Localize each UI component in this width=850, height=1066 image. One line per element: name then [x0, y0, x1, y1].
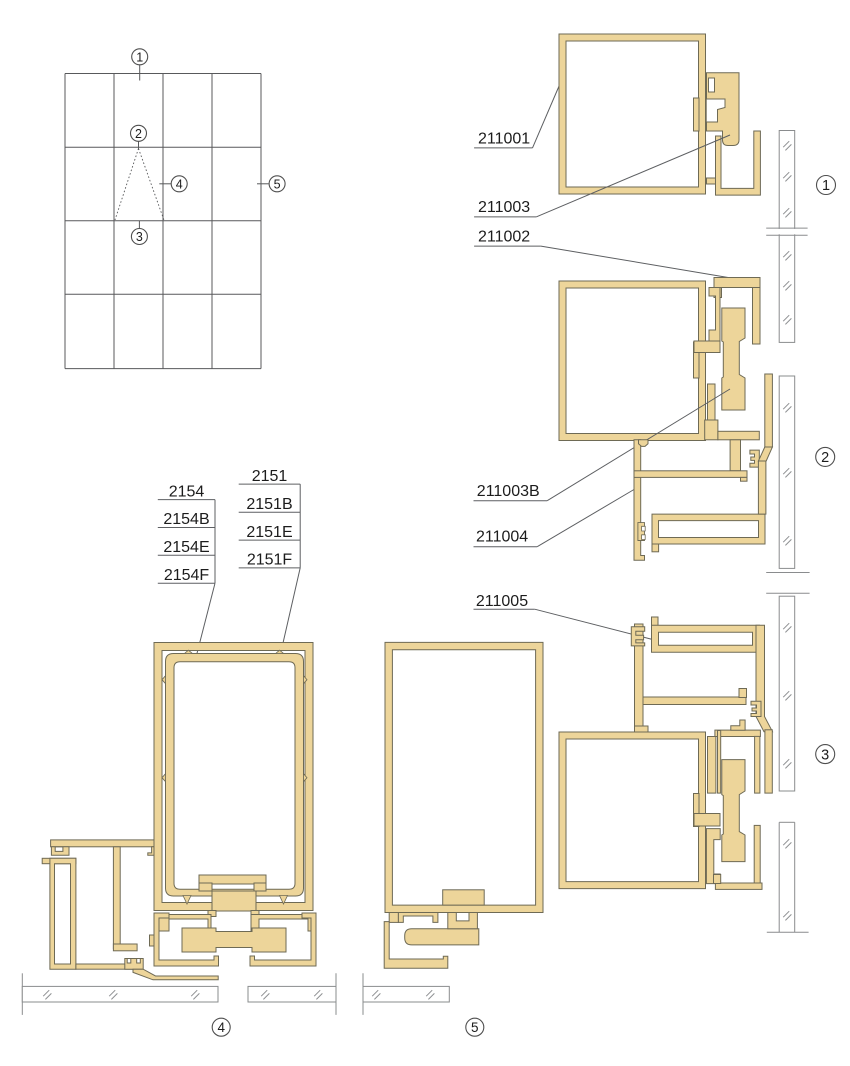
svg-text:2151: 2151	[252, 468, 288, 485]
svg-text:2154E: 2154E	[163, 539, 209, 556]
svg-text:211003: 211003	[478, 199, 530, 216]
svg-text:2151E: 2151E	[246, 524, 292, 541]
svg-text:2154F: 2154F	[164, 567, 210, 584]
svg-text:2151F: 2151F	[247, 552, 293, 569]
svg-text:1: 1	[136, 50, 143, 64]
svg-text:5: 5	[471, 1020, 479, 1035]
svg-text:211005: 211005	[476, 593, 528, 610]
svg-text:211003B: 211003B	[477, 483, 540, 500]
svg-text:4: 4	[176, 177, 183, 191]
svg-text:3: 3	[821, 747, 829, 763]
svg-text:5: 5	[274, 177, 281, 191]
svg-text:211004: 211004	[476, 529, 528, 546]
svg-text:2: 2	[135, 127, 142, 141]
svg-text:211002: 211002	[478, 228, 530, 245]
svg-text:211001: 211001	[478, 131, 530, 148]
svg-text:4: 4	[217, 1020, 225, 1035]
svg-text:1: 1	[822, 178, 830, 194]
svg-text:2: 2	[821, 450, 829, 466]
svg-text:3: 3	[136, 230, 143, 244]
svg-text:2151B: 2151B	[246, 496, 292, 513]
svg-text:2154: 2154	[169, 483, 205, 500]
svg-text:2154B: 2154B	[163, 511, 209, 528]
